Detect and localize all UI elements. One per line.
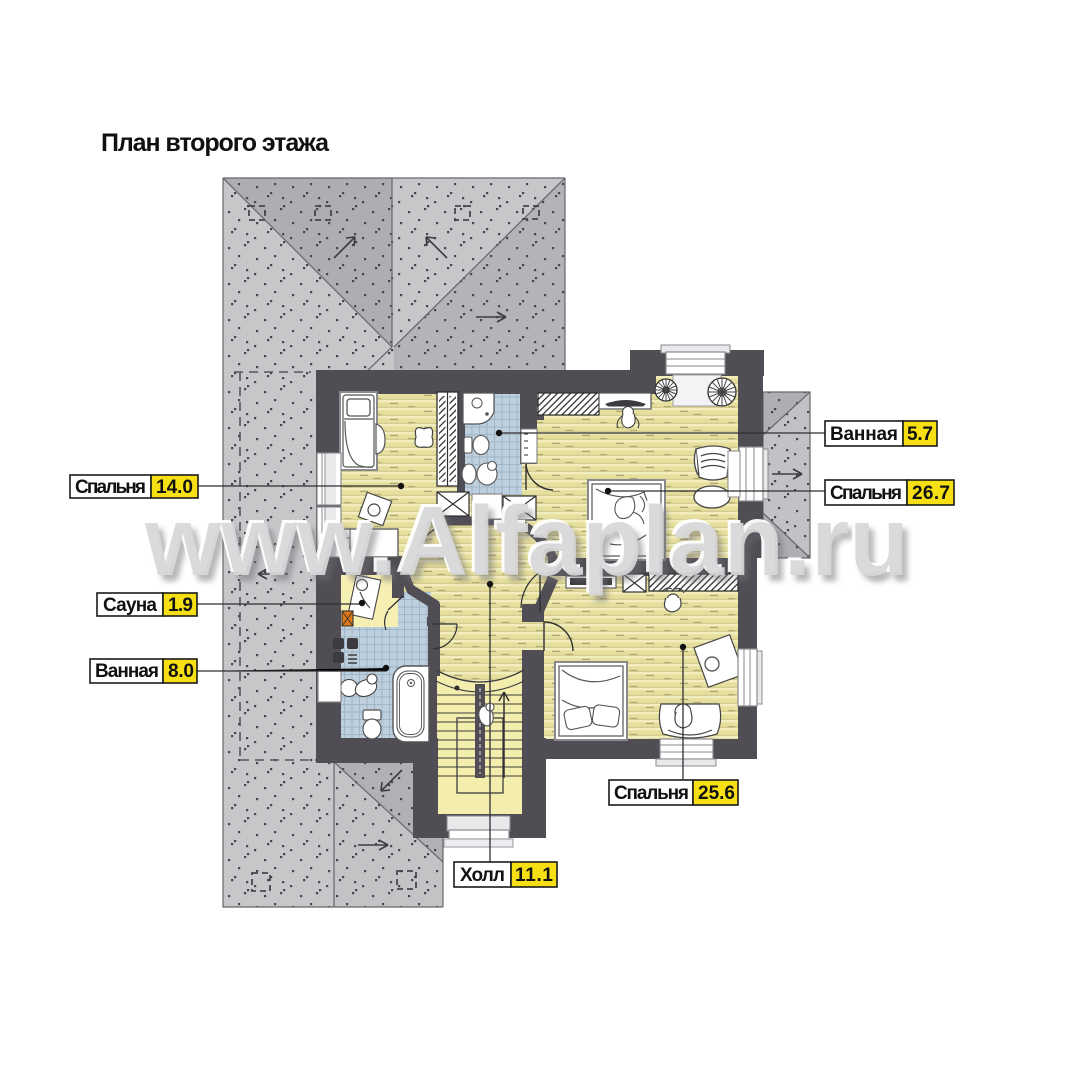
svg-text:25.6: 25.6 xyxy=(698,783,735,804)
svg-text:11.1: 11.1 xyxy=(515,865,553,886)
svg-text:План второго этажа: План второго этажа xyxy=(101,129,330,157)
svg-text:Спальня: Спальня xyxy=(75,477,146,498)
svg-text:Спальня: Спальня xyxy=(614,783,689,804)
svg-text:26.7: 26.7 xyxy=(912,483,950,504)
svg-text:Холл: Холл xyxy=(460,865,505,886)
svg-text:Ванная: Ванная xyxy=(95,661,159,682)
svg-text:5.7: 5.7 xyxy=(907,424,933,445)
svg-text:Ванная: Ванная xyxy=(830,424,898,445)
svg-text:8.0: 8.0 xyxy=(168,661,194,682)
svg-text:www.Alfaplan.ru: www.Alfaplan.ru xyxy=(144,486,909,596)
